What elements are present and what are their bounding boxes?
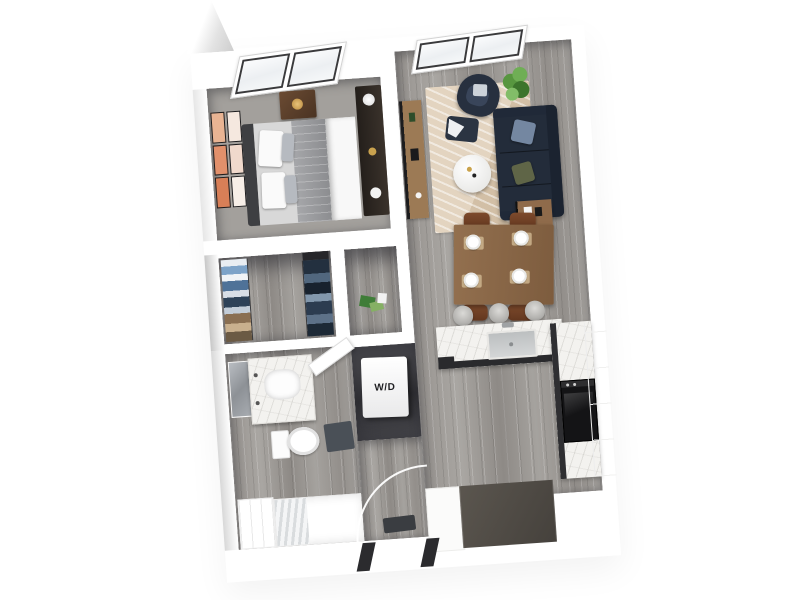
window-pane xyxy=(469,29,523,62)
kitchen-island xyxy=(436,319,565,370)
room-bathroom xyxy=(225,345,364,549)
window-pane xyxy=(416,37,470,70)
front-door-jamb xyxy=(420,538,439,567)
window-pane xyxy=(235,53,290,94)
plate xyxy=(466,235,481,250)
sofa-cushion-seam xyxy=(502,183,551,187)
faucet xyxy=(502,322,514,328)
bed-accent-pillow xyxy=(284,175,298,204)
bath-mat xyxy=(323,421,355,453)
front-door-jamb xyxy=(357,542,376,571)
bed xyxy=(241,117,362,227)
console-bottle xyxy=(409,112,416,121)
room-hall-closet xyxy=(344,246,402,335)
nightstand xyxy=(279,89,317,119)
closet-paper xyxy=(377,293,387,304)
plate xyxy=(514,231,529,246)
plate xyxy=(512,269,527,284)
sofa-pillow-slate xyxy=(510,119,536,145)
sink-drain xyxy=(509,342,513,346)
potted-plant xyxy=(500,66,532,104)
art-frame xyxy=(215,177,231,209)
vanity-faucet xyxy=(256,401,260,405)
entry-cabinets xyxy=(425,480,557,551)
art-frame xyxy=(210,112,226,144)
sofa-pillow-olive xyxy=(511,161,536,186)
vanity-faucet xyxy=(254,373,258,377)
closet-shelves-clothes xyxy=(221,259,253,343)
ottoman xyxy=(445,116,479,143)
toilet-bowl xyxy=(286,426,320,456)
washer-dryer-label: W/D xyxy=(361,356,409,418)
plate xyxy=(464,273,479,288)
apartment-plan: W/D xyxy=(190,24,621,582)
console-cup xyxy=(415,192,421,198)
washer-dryer-unit: W/D xyxy=(361,356,409,418)
bathtub xyxy=(273,493,366,547)
bed-pillow xyxy=(261,172,286,209)
window-pane xyxy=(287,46,342,87)
kitchen-sink xyxy=(486,329,538,360)
dresser-decor xyxy=(368,147,377,156)
room-walk-in-closet xyxy=(218,251,336,345)
bed-pillow xyxy=(258,130,284,167)
cabinet-taupe xyxy=(459,480,557,548)
ottoman-throw xyxy=(447,119,465,139)
dresser-dish xyxy=(370,187,382,199)
bathroom-vanity xyxy=(248,354,316,424)
plant-leaf xyxy=(505,87,519,101)
table-decor xyxy=(467,167,472,172)
linen-closet xyxy=(237,497,276,549)
nightstand-flowers xyxy=(292,98,304,110)
bed-mattress xyxy=(253,117,362,226)
console-electronics xyxy=(410,148,419,161)
vanity-basin xyxy=(263,368,301,400)
dresser-lamp xyxy=(362,93,375,106)
sofa-cushion-seam xyxy=(500,149,549,153)
table-decor xyxy=(472,173,476,177)
room-laundry-closet: W/D xyxy=(351,343,421,441)
island-base-cabinet xyxy=(438,356,455,369)
floor-plan-render: W/D xyxy=(0,0,800,600)
wall-corner-spike xyxy=(182,0,234,54)
art-frame xyxy=(213,144,229,176)
art-frame xyxy=(226,111,242,143)
shower-glass-panel xyxy=(274,498,309,546)
closet-hanging-clothes xyxy=(303,259,334,337)
bathroom-door xyxy=(308,337,355,377)
bed-accent-pillow xyxy=(281,133,294,162)
armchair-pillow xyxy=(473,84,487,96)
